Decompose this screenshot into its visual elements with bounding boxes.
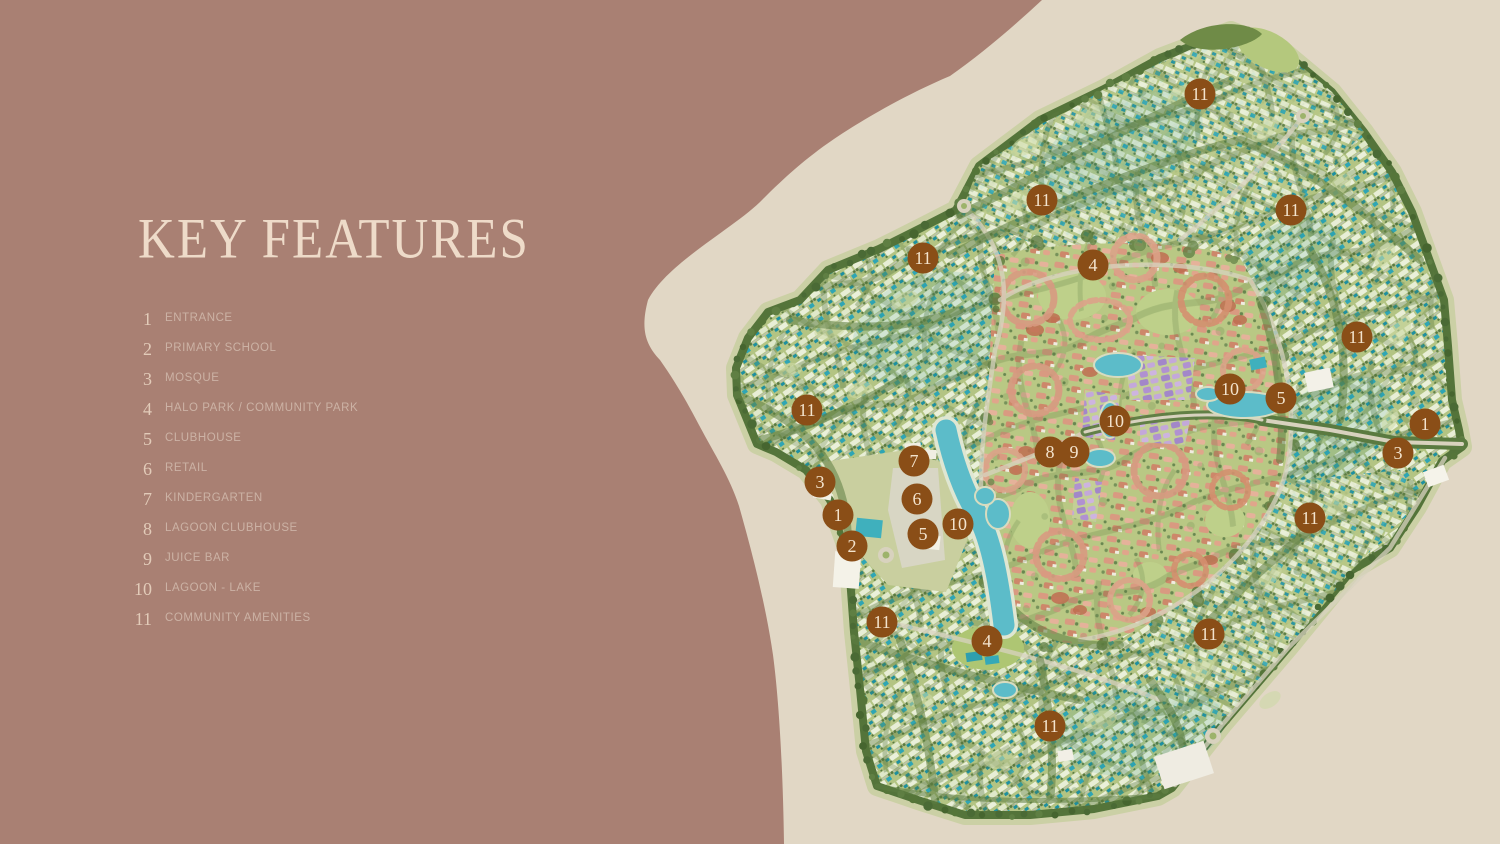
svg-text:11: 11 xyxy=(798,400,815,420)
svg-text:5: 5 xyxy=(919,524,928,544)
svg-text:7: 7 xyxy=(910,451,919,471)
svg-text:2: 2 xyxy=(848,536,857,556)
svg-text:5: 5 xyxy=(1277,388,1286,408)
svg-text:11: 11 xyxy=(1041,716,1058,736)
svg-text:6: 6 xyxy=(913,489,922,509)
svg-text:11: 11 xyxy=(1033,190,1050,210)
svg-text:11: 11 xyxy=(1191,84,1208,104)
svg-text:10: 10 xyxy=(1106,411,1124,431)
svg-text:11: 11 xyxy=(873,612,890,632)
svg-text:11: 11 xyxy=(1200,624,1217,644)
svg-text:8: 8 xyxy=(1046,442,1055,462)
svg-text:1: 1 xyxy=(1421,414,1430,434)
svg-text:10: 10 xyxy=(1221,379,1239,399)
svg-text:3: 3 xyxy=(1394,443,1403,463)
svg-text:1: 1 xyxy=(834,505,843,525)
svg-text:4: 4 xyxy=(983,631,992,651)
svg-text:11: 11 xyxy=(914,248,931,268)
svg-text:11: 11 xyxy=(1301,508,1318,528)
svg-text:9: 9 xyxy=(1070,442,1079,462)
svg-text:4: 4 xyxy=(1089,255,1098,275)
svg-text:11: 11 xyxy=(1282,200,1299,220)
svg-text:11: 11 xyxy=(1348,327,1365,347)
svg-text:10: 10 xyxy=(949,514,967,534)
svg-text:3: 3 xyxy=(816,472,825,492)
